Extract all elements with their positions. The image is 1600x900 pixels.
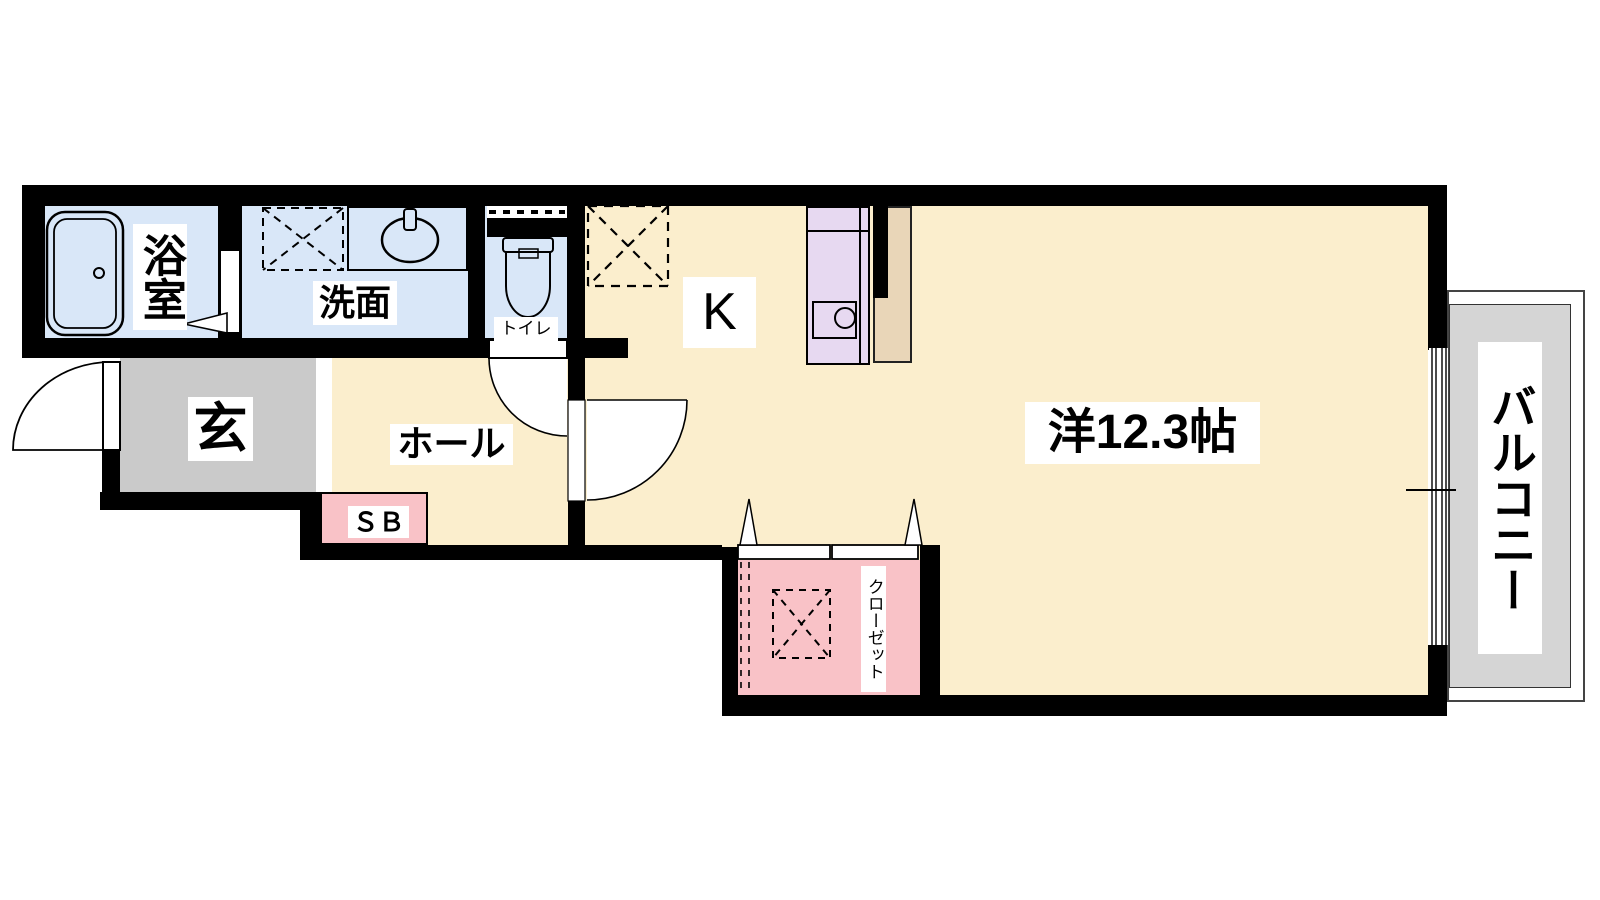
floorplan-canvas: 浴室 洗面 トイレ K 玄 ホール ＳＢ 洋12.3帖 クローゼット バルコニー (0, 0, 1600, 900)
kitchen-label: K (683, 277, 756, 348)
wall-counter-stub (873, 206, 888, 298)
kitchen-counter (806, 206, 870, 365)
closet-label: クローゼット (861, 566, 886, 692)
wall-wetarea-bottom (22, 338, 628, 358)
wall-under-entry-door (102, 450, 120, 510)
wall-right-upper (1428, 185, 1447, 350)
wall-entrance-bottom (100, 492, 332, 510)
wall-bottom-main (722, 695, 1447, 716)
wall-closet-left (722, 547, 738, 716)
wall-hall-bottom (318, 545, 722, 560)
toilet-label: トイレ (494, 317, 558, 341)
hall-label: ホール (390, 424, 513, 465)
outside-cutout (0, 560, 722, 900)
entrance-label: 玄 (188, 397, 253, 461)
wall-hall-kitchen (568, 358, 585, 560)
wall-bath-washroom (218, 206, 242, 340)
wall-washroom-toilet (468, 206, 485, 340)
entrance-door (13, 362, 120, 450)
wall-left (22, 185, 45, 358)
washroom-label: 洗面 (313, 281, 397, 325)
bathroom-floor (45, 206, 218, 338)
balcony-label: バルコニー (1478, 342, 1542, 654)
closet-floor (738, 560, 920, 695)
wall-top (22, 185, 1447, 206)
entrance-threshold (316, 358, 332, 492)
bathroom-label: 浴室 (133, 224, 187, 330)
wall-closet-right (920, 545, 940, 716)
wall-toilet-kitchen (567, 206, 585, 358)
toilet-shelf-bar (487, 218, 567, 237)
shoebox-label: ＳＢ (348, 506, 409, 538)
main-room-label: 洋12.3帖 (1025, 402, 1260, 464)
wall-right-lower (1428, 645, 1447, 716)
balcony-window (1429, 348, 1448, 645)
